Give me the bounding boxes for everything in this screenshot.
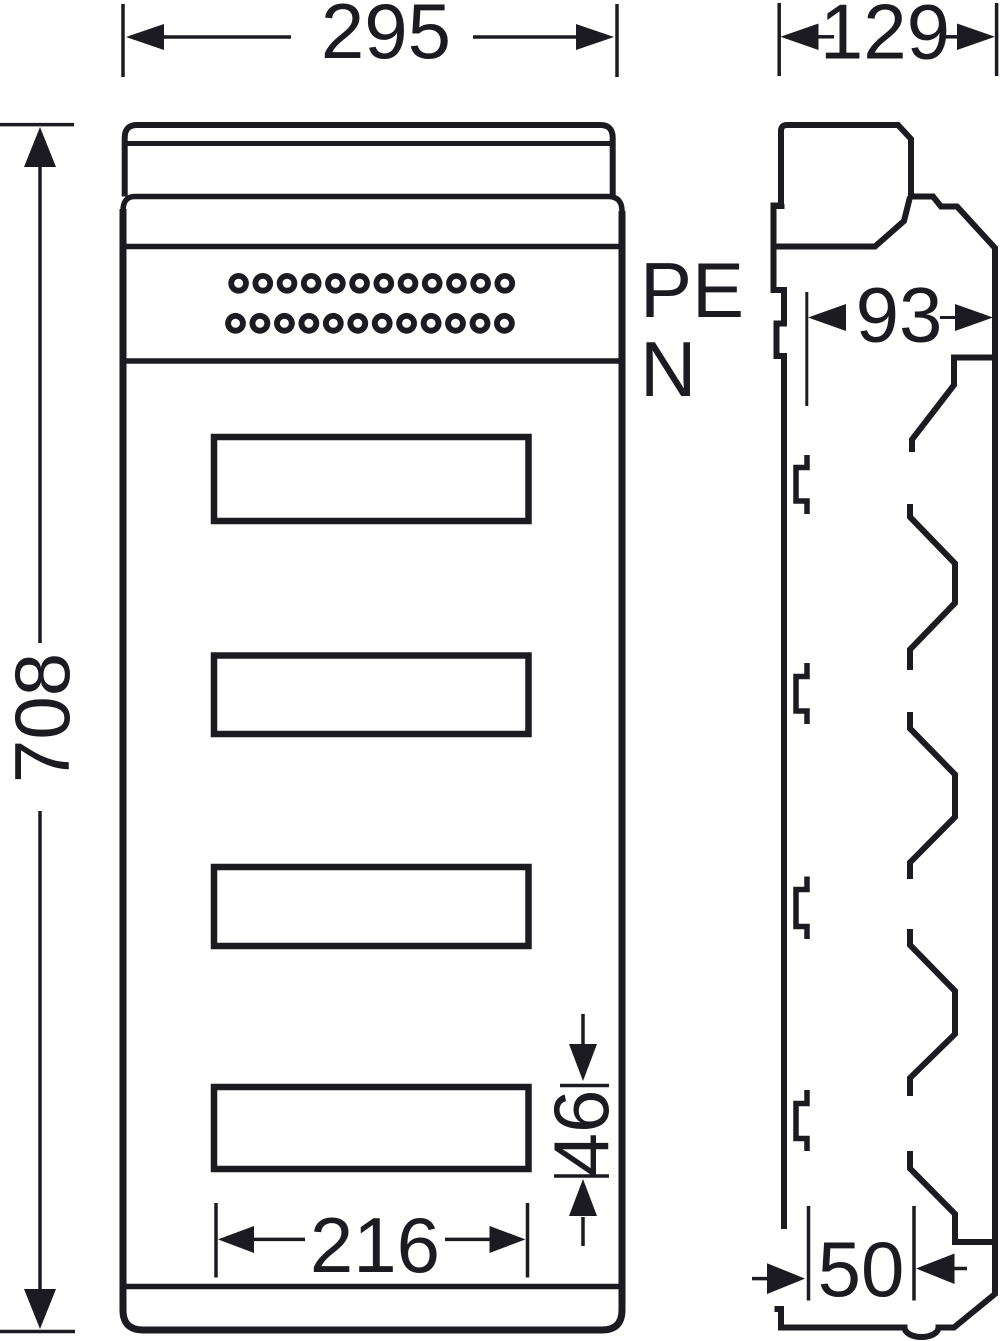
svg-text:93: 93: [856, 271, 943, 359]
svg-text:46: 46: [537, 1090, 625, 1177]
svg-text:216: 216: [310, 1201, 440, 1289]
svg-text:708: 708: [0, 653, 86, 783]
svg-text:295: 295: [321, 0, 451, 75]
svg-text:50: 50: [818, 1225, 905, 1313]
svg-text:PE: PE: [640, 246, 744, 334]
svg-text:N: N: [640, 325, 696, 413]
svg-text:129: 129: [820, 0, 950, 75]
